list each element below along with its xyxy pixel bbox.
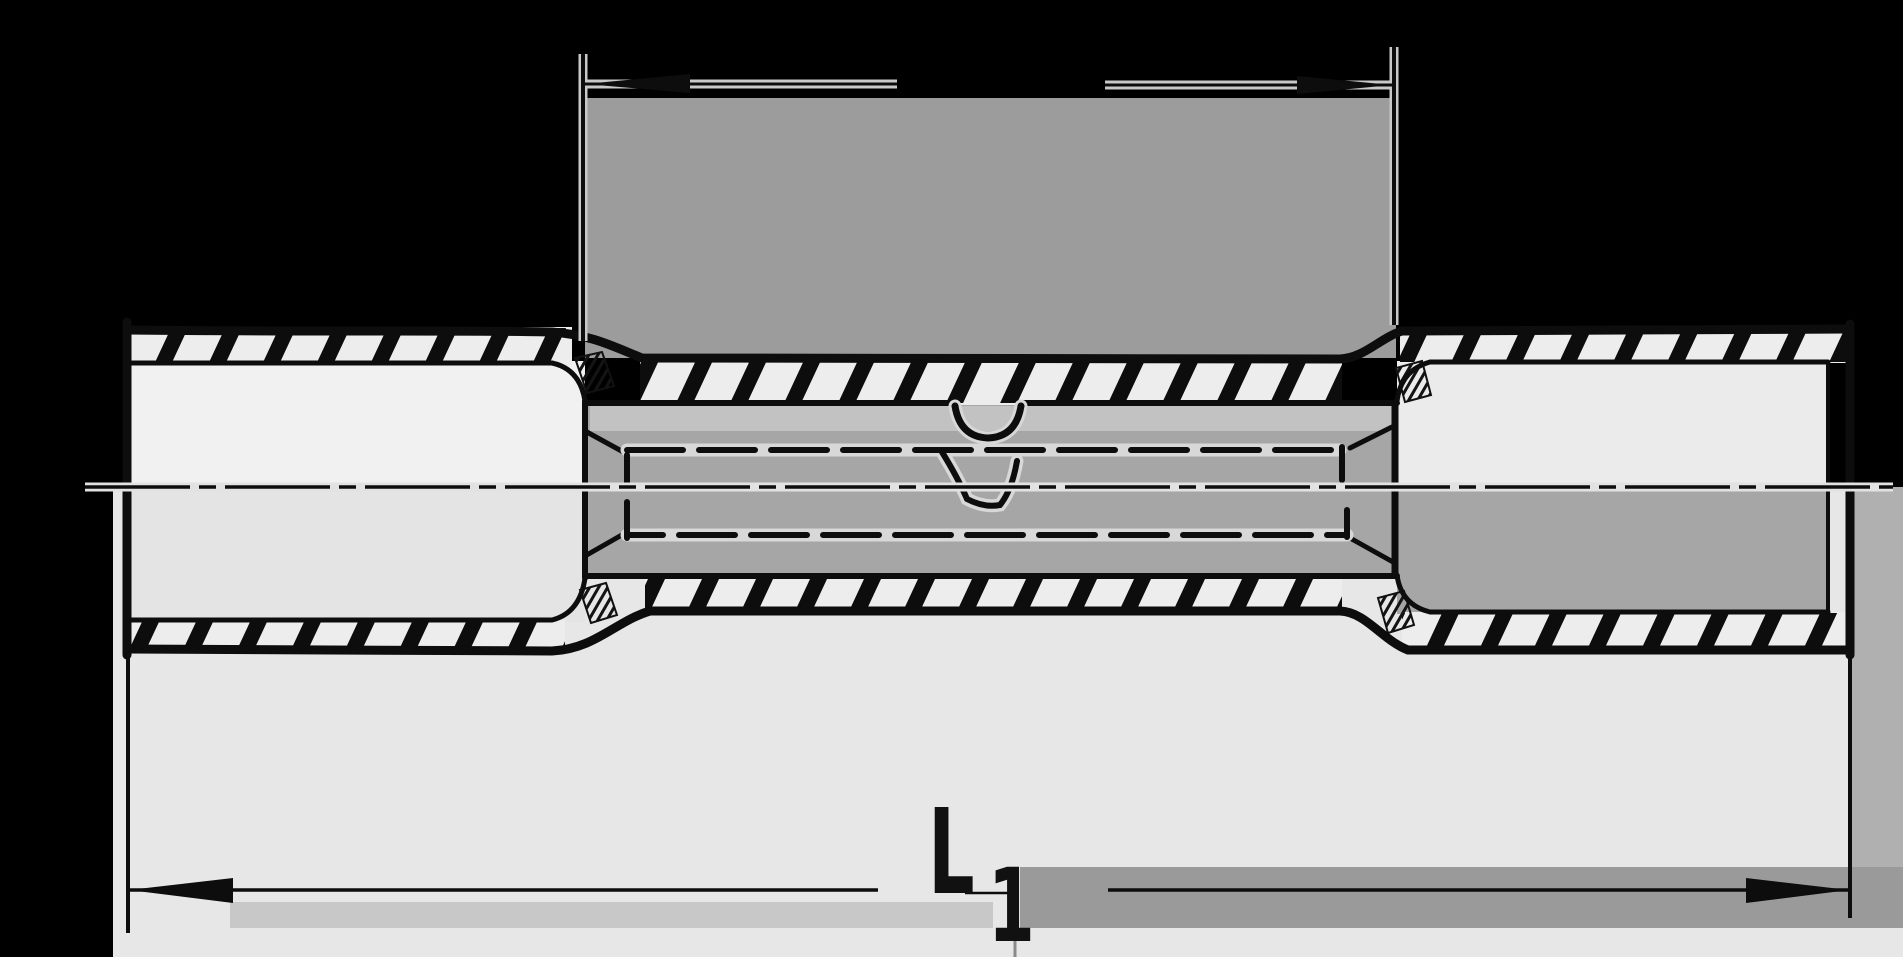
scan-gray-band-left [230, 902, 993, 928]
arrowhead-top-left [585, 74, 690, 93]
right-cavity-lower [1397, 487, 1828, 614]
right-cavity-upper [1397, 361, 1828, 487]
hatch-top-middle [640, 358, 1342, 403]
arrowhead-top-right [1297, 76, 1392, 94]
hatch-bottom-right [1402, 613, 1849, 650]
middle-cavity-highlight [590, 406, 1395, 431]
drawing-canvas: L 1 [0, 0, 1903, 957]
connector-diagram: L 1 [0, 0, 1903, 957]
left-cavity-upper [128, 361, 585, 487]
label-subscript-1: 1 [988, 848, 1035, 957]
hatch-bottom-middle [645, 577, 1342, 610]
left-cavity-lower [128, 487, 585, 622]
scan-gray-column-right [1848, 487, 1903, 890]
scan-gray-rect-top [585, 98, 1396, 358]
label-L: L [928, 785, 975, 922]
